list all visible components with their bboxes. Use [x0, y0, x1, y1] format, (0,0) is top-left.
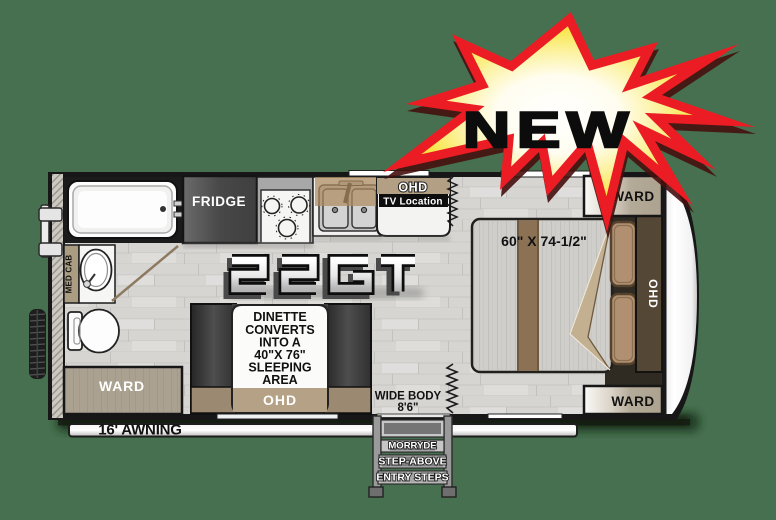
svg-text:ENTRY STEPS: ENTRY STEPS: [376, 472, 448, 484]
svg-text:MED CAB: MED CAB: [65, 255, 74, 294]
svg-text:DINETTE: DINETTE: [253, 310, 306, 324]
svg-text:16' AWNING: 16' AWNING: [98, 422, 182, 439]
svg-text:WARD: WARD: [99, 378, 145, 394]
svg-text:8'6": 8'6": [398, 402, 419, 414]
svg-text:STEP-ABOVE: STEP-ABOVE: [378, 456, 446, 468]
svg-text:WARD: WARD: [611, 394, 654, 409]
svg-text:FRIDGE: FRIDGE: [192, 194, 246, 209]
svg-text:NEW: NEW: [463, 102, 635, 158]
svg-text:OHD: OHD: [646, 279, 660, 309]
svg-text:TV Location: TV Location: [383, 197, 442, 208]
svg-text:MORRYDE: MORRYDE: [388, 441, 436, 452]
svg-text:60" X 74-1/2": 60" X 74-1/2": [501, 233, 587, 249]
svg-text:OHD: OHD: [398, 181, 427, 195]
svg-text:OHD: OHD: [263, 392, 297, 408]
svg-text:WIDE BODY: WIDE BODY: [375, 391, 442, 403]
svg-text:AREA: AREA: [262, 373, 297, 387]
